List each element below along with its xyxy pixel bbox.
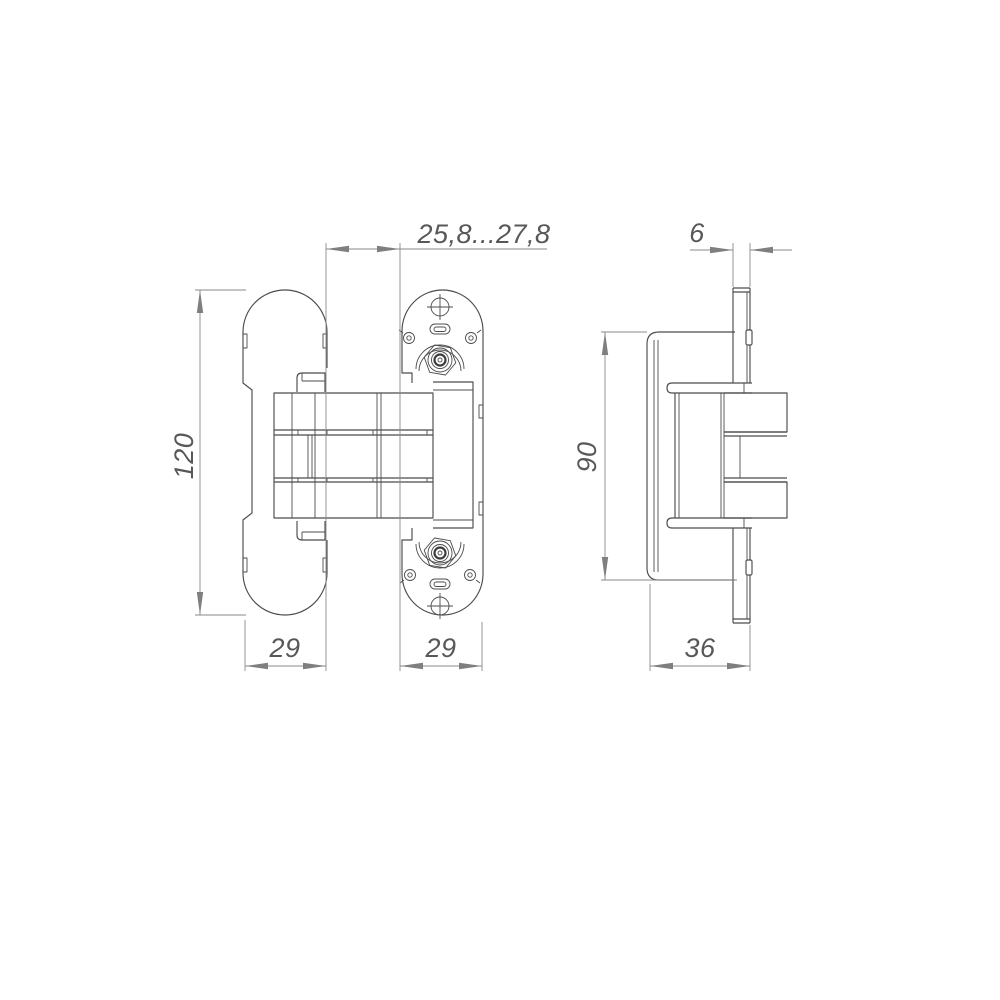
dim-label-frame-leaf-width: 29	[424, 633, 456, 663]
dimensions: 25,8...27,8 6 120 90	[169, 218, 792, 671]
side-hinge-cup	[675, 393, 724, 518]
dim-side-depth: 36	[650, 584, 750, 671]
hinge-arm-mechanism	[274, 393, 433, 518]
dim-gap: 25,8...27,8	[326, 219, 551, 671]
dim-label-door-leaf-width: 29	[268, 633, 300, 663]
bottom-side-holes	[400, 570, 480, 584]
dim-label-side-depth: 36	[684, 633, 716, 663]
front-view	[243, 290, 483, 619]
dim-frame-leaf-width: 29	[400, 622, 482, 671]
bottom-slot	[430, 579, 450, 589]
dim-label-side-height: 90	[572, 441, 602, 472]
bottom-screw-hole	[427, 593, 453, 619]
bottom-adjustment-screw	[416, 538, 464, 568]
top-screw-hole	[427, 294, 453, 320]
hinge-drawing-svg: 25,8...27,8 6 120 90	[0, 0, 1000, 1000]
arm-bracket	[433, 382, 473, 528]
lower-interlock-tab	[297, 521, 325, 540]
dim-label-gap: 25,8...27,8	[416, 219, 550, 249]
dim-plate-thickness: 6	[689, 218, 792, 287]
technical-drawing-canvas: 25,8...27,8 6 120 90	[0, 0, 1000, 1000]
dim-label-plate-thickness: 6	[689, 218, 705, 248]
upper-interlock-tab	[297, 373, 325, 392]
side-knuckle-blocks	[724, 393, 787, 518]
side-frame-plate	[733, 288, 752, 623]
door-capsule-body	[243, 290, 327, 615]
dim-label-overall-height: 120	[169, 433, 199, 480]
top-slot	[430, 324, 450, 334]
side-view	[647, 288, 787, 623]
dim-side-height: 90	[572, 332, 737, 580]
dim-door-leaf-width: 29	[245, 620, 326, 671]
side-door-leaf	[647, 332, 735, 580]
top-side-holes	[399, 330, 481, 344]
cup-flanges	[667, 383, 752, 528]
dim-overall-height: 120	[169, 290, 246, 615]
top-adjustment-screw	[416, 345, 464, 375]
